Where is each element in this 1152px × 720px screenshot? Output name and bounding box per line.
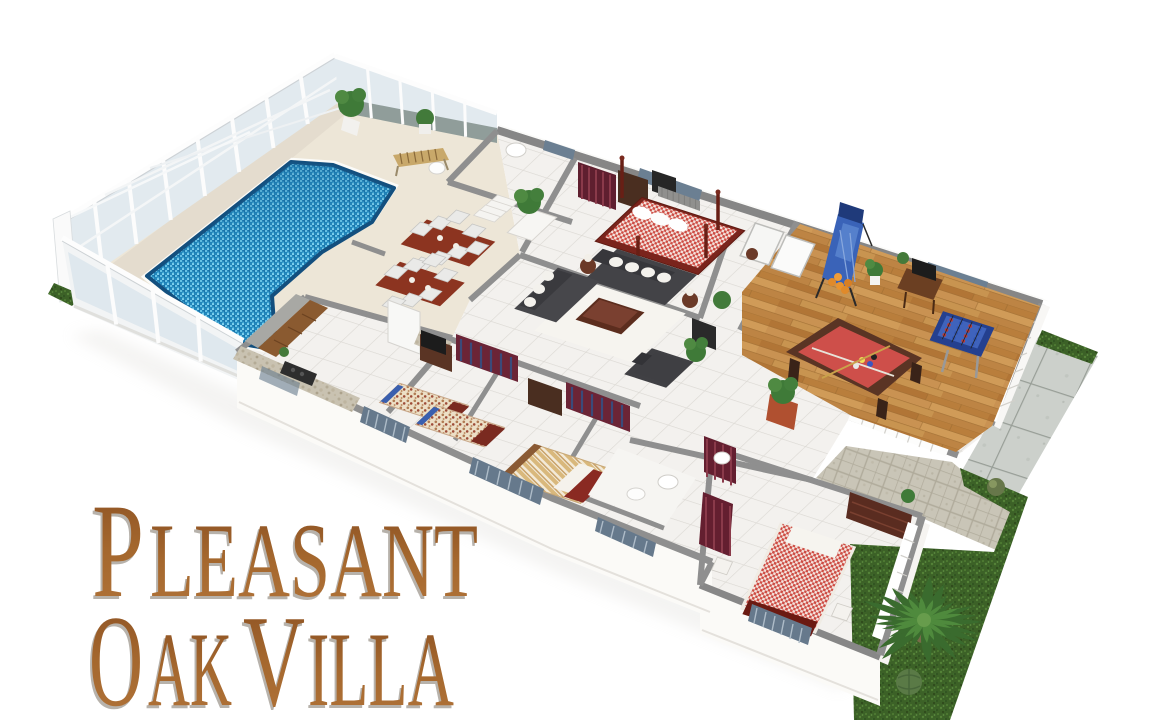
svg-text:ILLA: ILLA [308, 611, 454, 720]
svg-text:O: O [89, 589, 143, 720]
svg-text:AK: AK [148, 611, 232, 720]
svg-text:LEASANT: LEASANT [150, 502, 478, 619]
svg-text:V: V [243, 589, 305, 720]
